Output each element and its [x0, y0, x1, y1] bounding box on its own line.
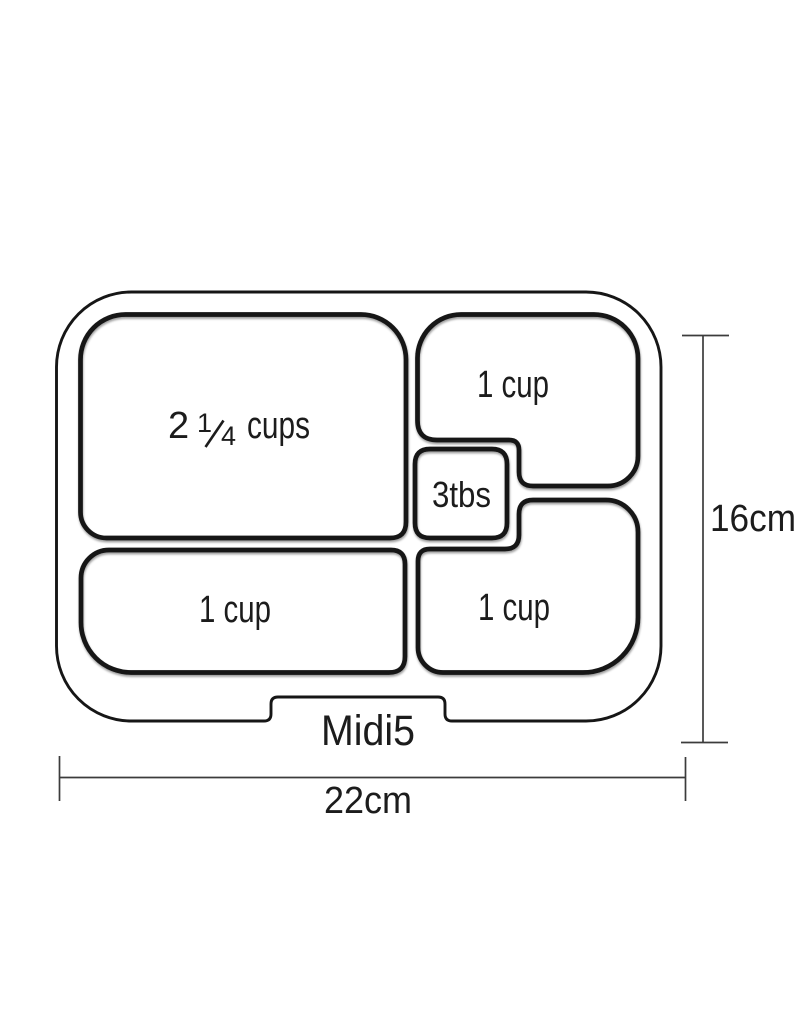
svg-text:cups: cups	[247, 405, 310, 447]
svg-text:1 cup: 1 cup	[199, 589, 271, 631]
svg-text:1 cup: 1 cup	[477, 364, 549, 406]
svg-text:22cm: 22cm	[324, 780, 412, 822]
svg-text:2: 2	[168, 405, 189, 447]
svg-text:3tbs: 3tbs	[432, 474, 491, 515]
svg-text:16cm: 16cm	[710, 498, 796, 540]
svg-text:Midi5: Midi5	[321, 707, 415, 755]
svg-text:4: 4	[221, 421, 236, 451]
svg-text:1: 1	[197, 408, 212, 438]
svg-text:1 cup: 1 cup	[478, 587, 550, 629]
